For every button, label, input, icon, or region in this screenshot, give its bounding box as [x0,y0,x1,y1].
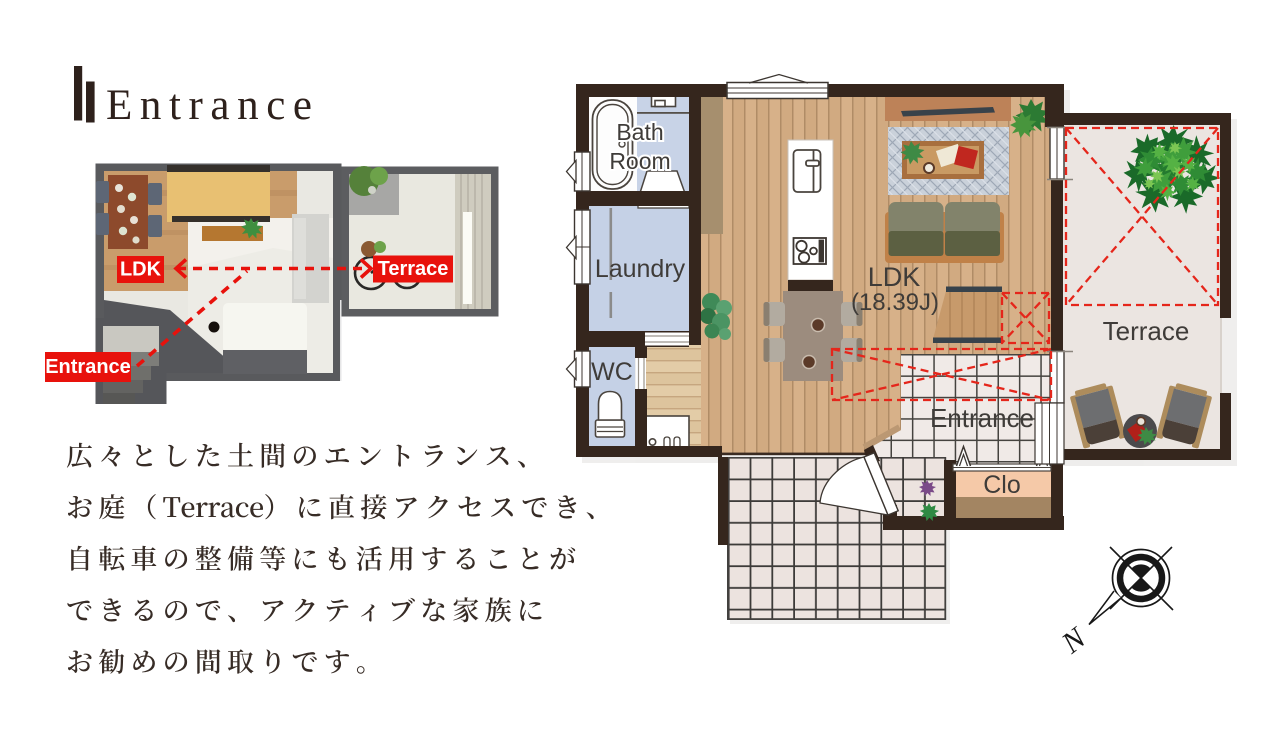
svg-text:Clo: Clo [983,471,1021,499]
svg-text:Entrance: Entrance [45,356,131,378]
svg-text:Terrace: Terrace [1103,316,1190,346]
svg-text:Bath: Bath [616,119,663,145]
svg-text:Room: Room [609,148,670,174]
svg-text:Entrance: Entrance [930,403,1034,433]
svg-text:Entrance: Entrance [106,82,320,129]
svg-text:Terrace: Terrace [378,258,449,280]
svg-text:LDK: LDK [120,259,162,281]
svg-text:WC: WC [591,358,633,386]
svg-text:(18.39J): (18.39J) [851,289,939,316]
svg-text:Laundry: Laundry [595,255,686,283]
svg-text:LDK: LDK [868,262,921,292]
